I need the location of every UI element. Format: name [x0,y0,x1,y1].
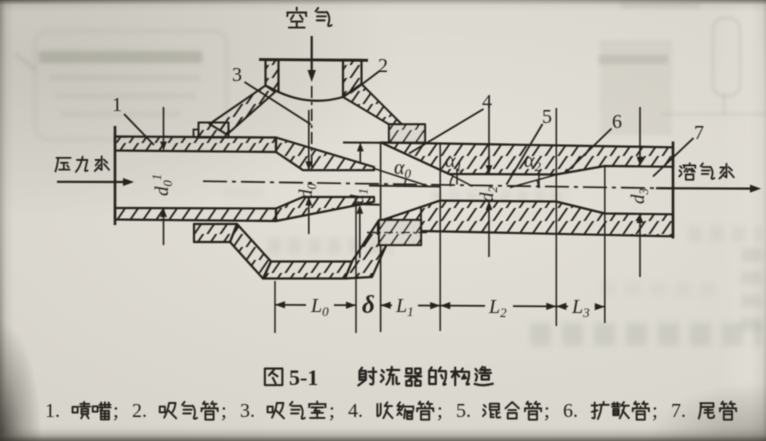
svg-text:L1: L1 [395,295,414,319]
svg-text:;: ; [544,398,550,422]
svg-text:7.: 7. [671,400,686,422]
svg-text:5: 5 [542,106,552,128]
svg-text:;: ; [437,398,443,422]
svg-text:δ: δ [362,292,375,319]
svg-text:5-1: 5-1 [289,365,318,390]
svg-text:d0: d0 [296,183,319,200]
svg-text:2.: 2. [132,400,147,422]
svg-text:1.: 1. [45,400,60,422]
svg-text:d3: d3 [628,188,651,204]
svg-text:;: ; [113,398,119,422]
svg-text:d01: d01 [150,174,175,196]
svg-text:2: 2 [378,55,388,77]
svg-text:L0: L0 [310,295,329,319]
svg-text:;: ; [221,398,227,422]
svg-text:d2: d2 [477,186,500,202]
svg-text:3.: 3. [240,400,255,422]
svg-text:7: 7 [694,122,704,144]
svg-text:5.: 5. [456,400,471,422]
svg-text:L3: L3 [571,296,590,320]
svg-text:6: 6 [612,111,622,133]
svg-text:α0: α0 [394,157,412,181]
svg-text:6.: 6. [563,400,578,422]
svg-text:4.: 4. [348,400,363,422]
svg-text:;: ; [329,398,335,422]
svg-text:;: ; [652,398,658,422]
svg-text:1: 1 [112,94,122,116]
svg-text:3: 3 [232,64,242,86]
svg-text:d1: d1 [348,188,371,204]
svg-text:L2: L2 [488,296,507,320]
